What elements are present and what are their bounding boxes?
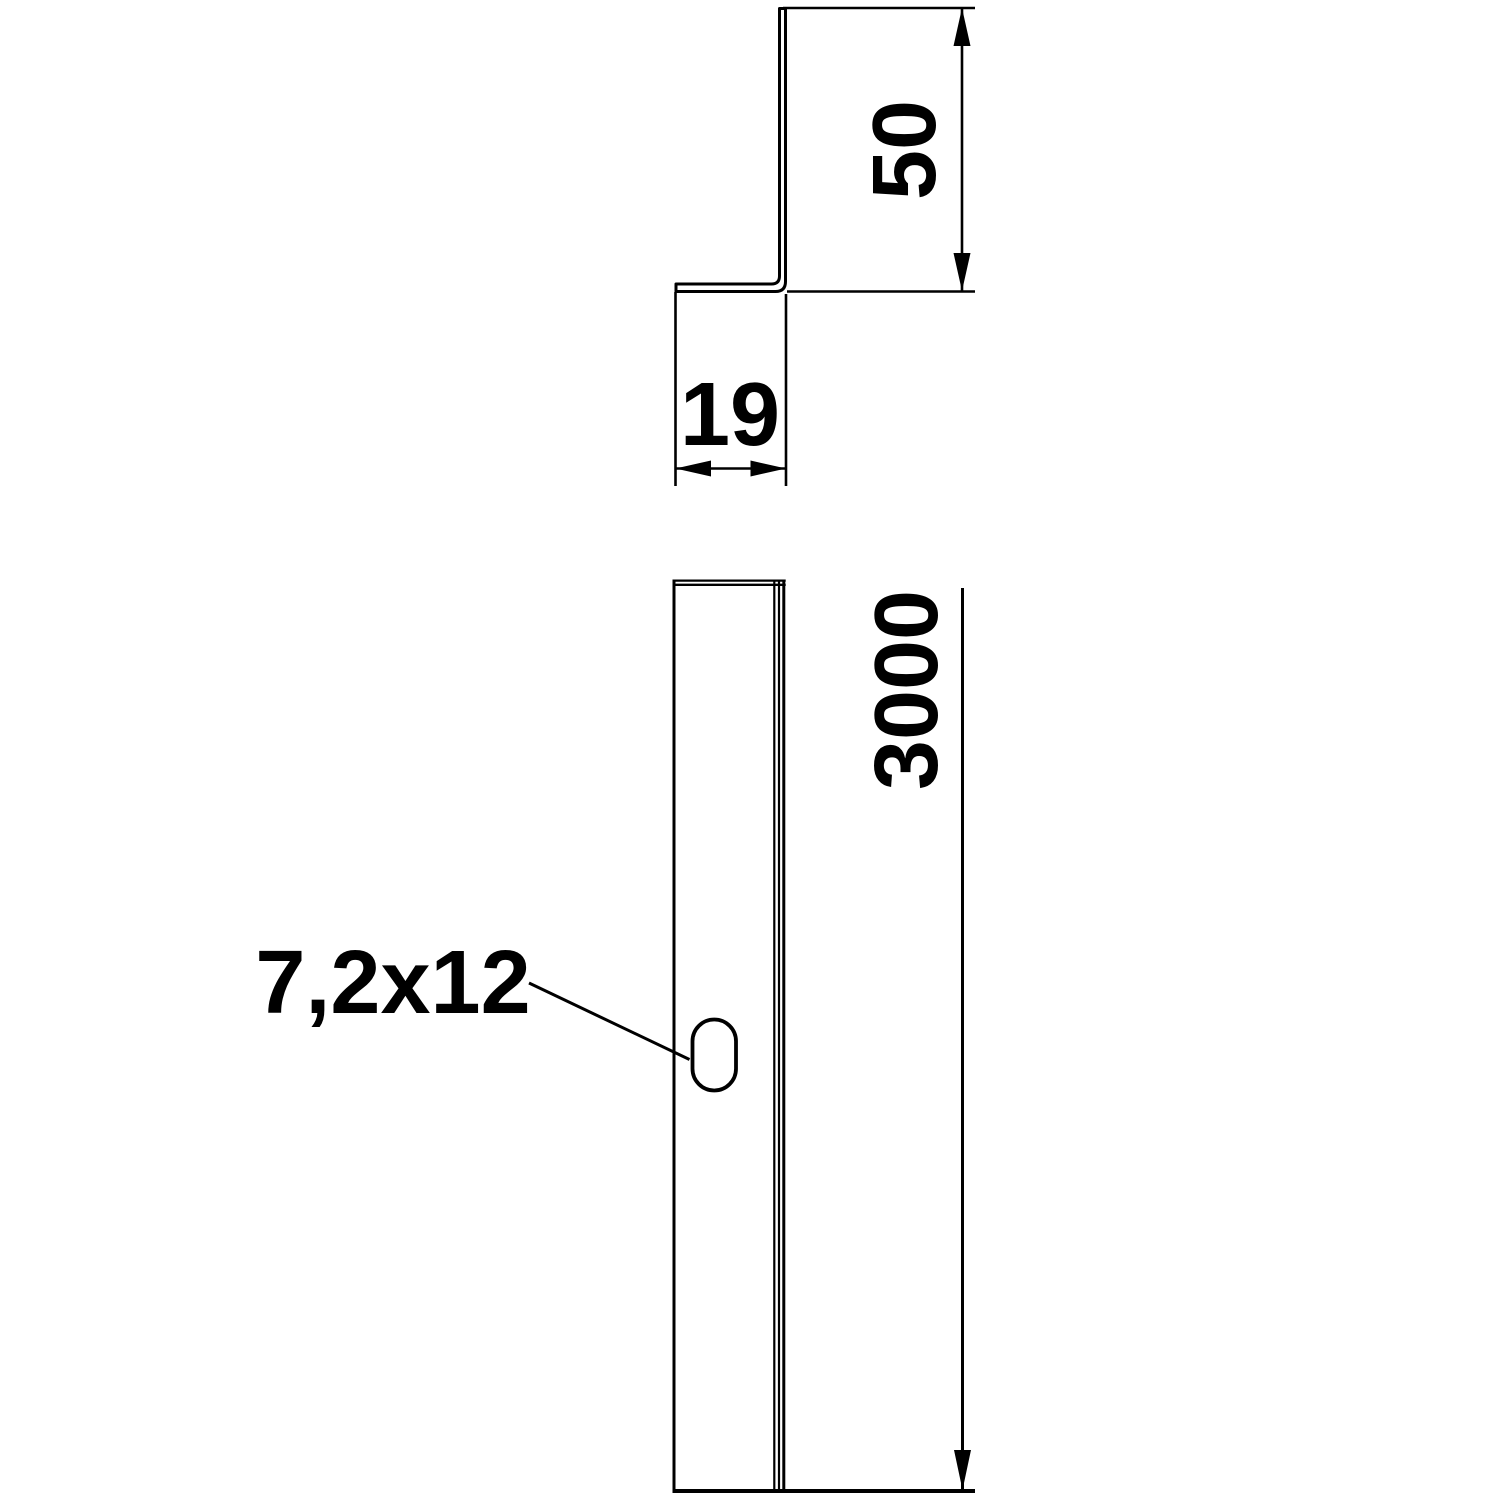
slot-size-label: 7,2x12 [255,933,530,1033]
dimension-label-length: 3000 [857,590,957,790]
slot-hole [693,1020,737,1091]
dimension-height: 50 [783,8,975,292]
dimension-label-height: 50 [855,100,955,200]
side-view: 7,2x12 3000 [255,580,975,1491]
arrowhead-down-icon [954,1450,971,1490]
cross-section-view: 50 19 [676,8,976,486]
leader-line [529,983,690,1060]
dimension-length: 3000 [857,588,971,1490]
arrowhead-up-icon [954,8,971,46]
arrowhead-down-icon [954,253,971,291]
dimension-depth: 19 [676,292,787,486]
z-profile-outline [676,9,786,292]
slot-callout: 7,2x12 [255,933,736,1091]
dimension-label-depth: 19 [680,365,780,465]
drawing-canvas: 50 19 [0,0,1500,1500]
technical-drawing: 50 19 [0,0,1500,1500]
